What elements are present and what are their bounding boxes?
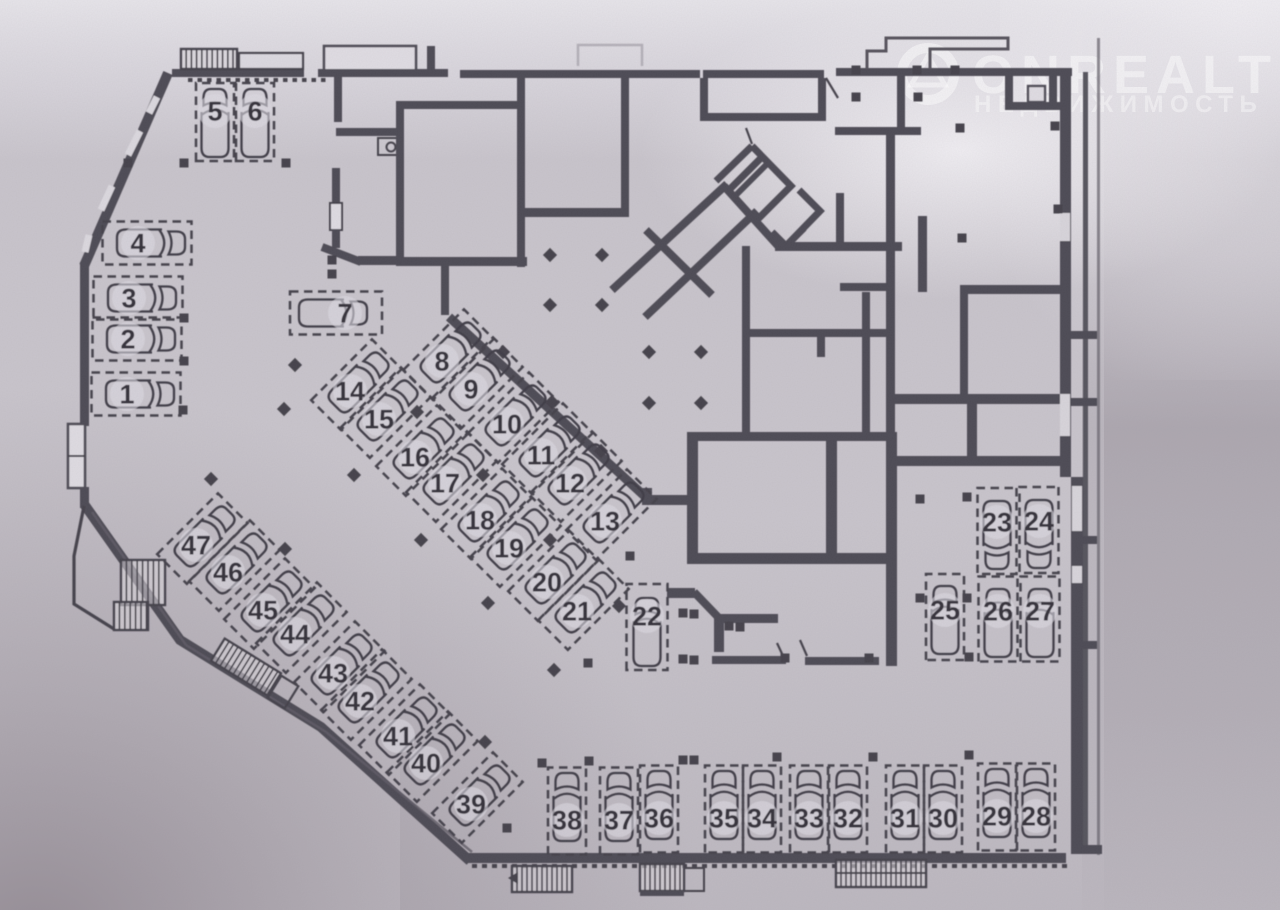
svg-text:12: 12: [555, 469, 585, 499]
svg-text:42: 42: [345, 687, 375, 717]
svg-text:28: 28: [1021, 802, 1051, 832]
svg-text:18: 18: [465, 506, 495, 536]
svg-text:6: 6: [247, 97, 262, 127]
svg-text:4: 4: [130, 229, 145, 259]
svg-text:20: 20: [532, 568, 562, 598]
svg-text:2: 2: [120, 325, 135, 355]
svg-text:21: 21: [562, 597, 592, 627]
svg-text:40: 40: [411, 749, 441, 779]
svg-text:41: 41: [383, 722, 413, 752]
svg-text:47: 47: [181, 531, 211, 561]
svg-text:22: 22: [632, 602, 662, 632]
svg-text:25: 25: [930, 596, 960, 626]
svg-text:8: 8: [434, 347, 449, 377]
svg-text:37: 37: [604, 806, 634, 836]
svg-text:9: 9: [463, 375, 478, 405]
svg-text:10: 10: [492, 410, 522, 440]
svg-text:33: 33: [794, 804, 824, 834]
svg-text:44: 44: [280, 620, 310, 650]
svg-text:16: 16: [400, 443, 430, 473]
svg-text:11: 11: [527, 441, 556, 471]
svg-text:23: 23: [982, 508, 1012, 538]
svg-text:3: 3: [121, 284, 136, 314]
svg-text:1: 1: [119, 380, 134, 410]
svg-text:38: 38: [552, 806, 582, 836]
svg-text:45: 45: [248, 596, 278, 626]
svg-text:46: 46: [213, 558, 243, 588]
svg-text:32: 32: [833, 804, 863, 834]
svg-text:43: 43: [318, 659, 348, 689]
svg-text:17: 17: [430, 469, 460, 499]
svg-text:14: 14: [335, 377, 365, 407]
svg-text:13: 13: [590, 507, 620, 537]
svg-text:35: 35: [709, 804, 739, 834]
svg-text:24: 24: [1024, 507, 1054, 537]
svg-text:27: 27: [1025, 597, 1055, 627]
svg-text:36: 36: [644, 804, 674, 834]
svg-text:15: 15: [364, 405, 394, 435]
svg-text:30: 30: [928, 804, 958, 834]
svg-text:19: 19: [494, 534, 524, 564]
svg-text:31: 31: [890, 804, 920, 834]
svg-text:34: 34: [747, 804, 777, 834]
svg-text:26: 26: [983, 597, 1013, 627]
svg-text:7: 7: [337, 299, 352, 329]
svg-text:29: 29: [982, 802, 1012, 832]
svg-text:5: 5: [207, 97, 222, 127]
svg-text:39: 39: [456, 790, 486, 820]
